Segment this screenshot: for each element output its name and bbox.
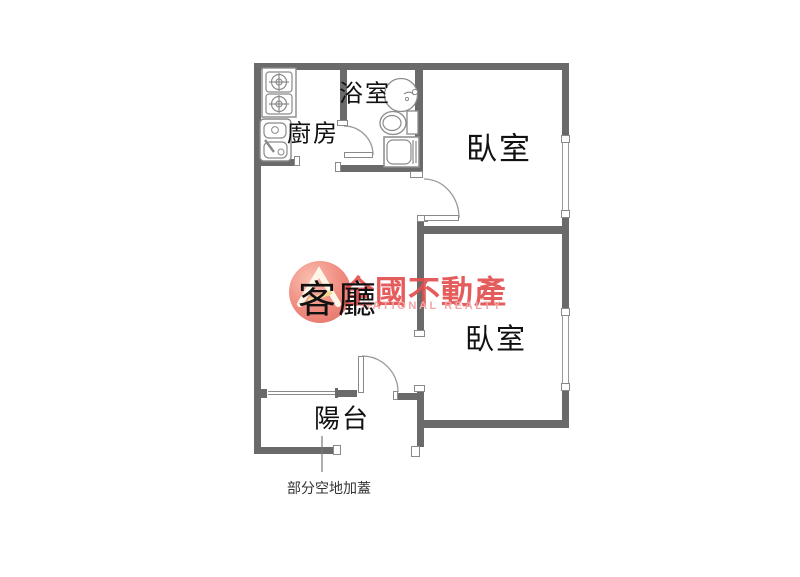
label-balcony-note: 部分空地加蓋	[287, 478, 371, 498]
annotation-layer	[0, 0, 800, 577]
floor-plan: 全國不動產 NATIONAL REALTY 廚房 浴室 臥室 臥室 客廳 陽台 …	[0, 0, 800, 577]
